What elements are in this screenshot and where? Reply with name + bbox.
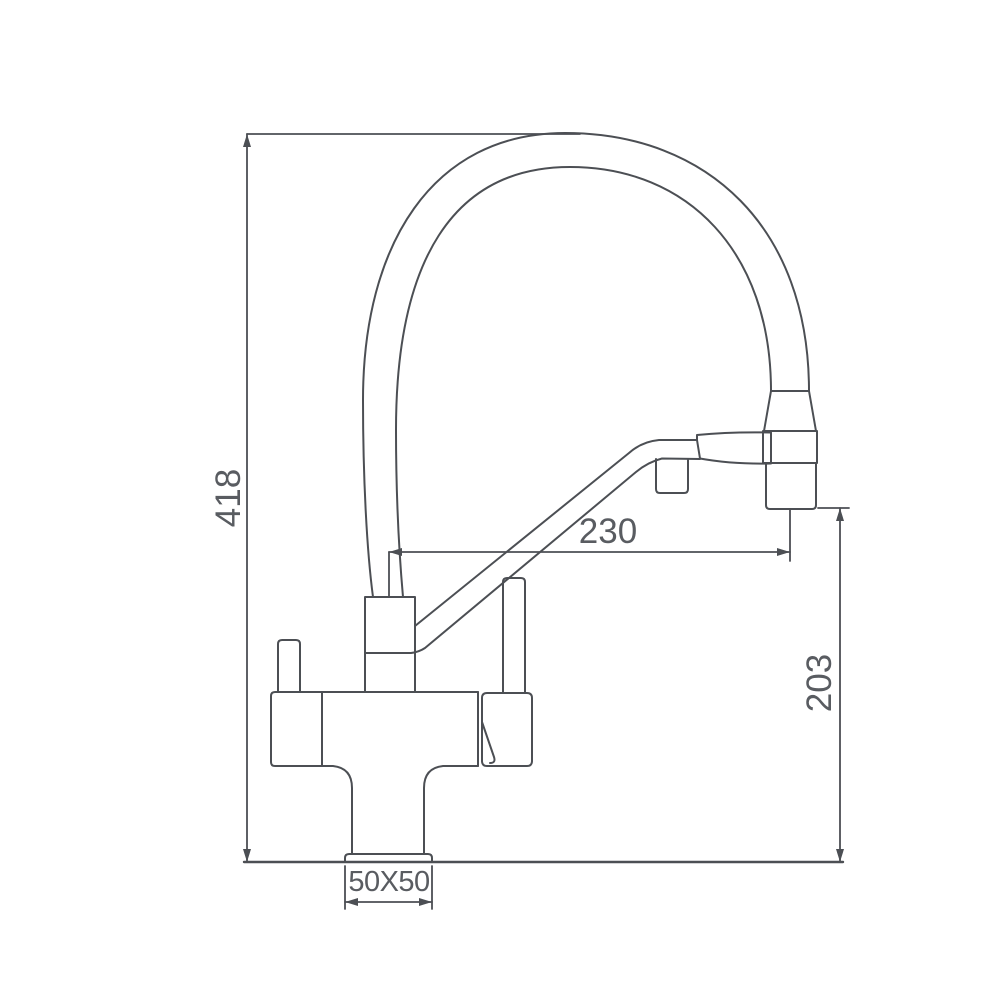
spray-head-collar — [764, 391, 816, 431]
arrow-reach-left — [389, 548, 402, 556]
faucet-technical-drawing: 418 230 203 50X50 — [0, 0, 1000, 1000]
faucet-linework — [244, 133, 849, 909]
spout-tip-cone — [697, 432, 771, 463]
faucet-body-outline — [271, 692, 478, 766]
arrow-height-top — [243, 134, 251, 147]
spout-arm-top-edge — [415, 440, 697, 626]
right-valve-lever-line — [482, 722, 495, 763]
arrow-height-bottom — [243, 849, 251, 862]
dimension-lines — [247, 134, 849, 909]
base-stem-left — [322, 766, 352, 854]
arrow-outlet-bottom — [836, 849, 844, 862]
dim-label-base-plate: 50X50 — [348, 866, 429, 898]
dim-label-spout-reach: 230 — [579, 512, 637, 551]
dim-label-overall-height: 418 — [209, 469, 248, 527]
right-handle-lever — [503, 578, 525, 693]
base-stem-right — [424, 766, 478, 854]
left-handle-lever — [278, 640, 300, 692]
arrow-outlet-top — [836, 508, 844, 521]
spray-head-body — [766, 463, 816, 509]
arrow-reach-right — [777, 548, 790, 556]
arrow-base-left — [345, 898, 358, 906]
faucet-neck — [365, 597, 415, 692]
right-valve-block — [482, 693, 532, 766]
dimension-arrowheads — [243, 134, 844, 906]
arrow-base-right — [419, 898, 432, 906]
spout-aerator-box — [656, 459, 688, 493]
dim-label-outlet-height: 203 — [800, 654, 839, 712]
